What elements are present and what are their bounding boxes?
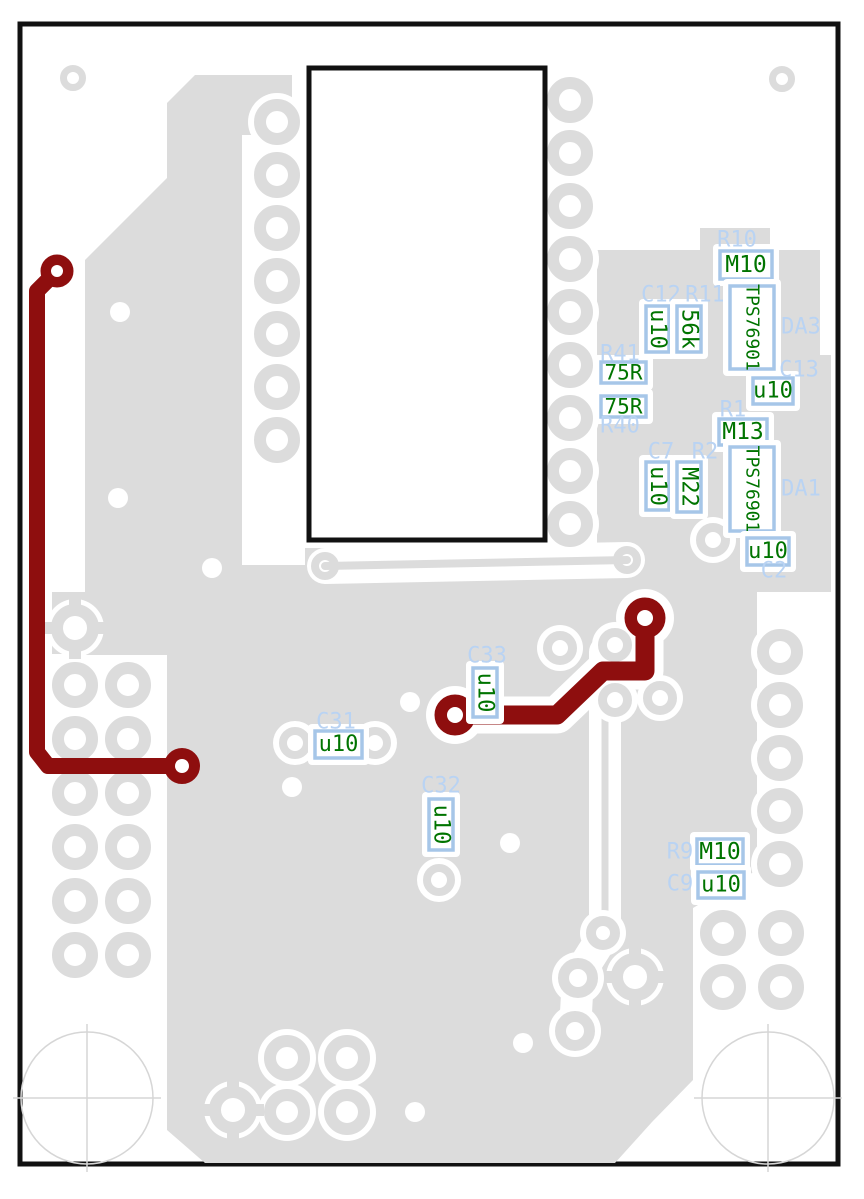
red-pad-hole: [447, 707, 463, 723]
reference-label: C32: [421, 774, 461, 799]
reference-label: R10: [717, 228, 757, 253]
red-pad-hole: [51, 265, 63, 277]
module-outline: [309, 68, 545, 540]
value-label: TPS76901: [742, 446, 763, 533]
pad-clearance: [54, 59, 92, 97]
reference-label: R2: [692, 440, 719, 465]
reference-label: C31: [316, 710, 356, 735]
value-label: 56k: [677, 309, 702, 349]
value-label: u10: [319, 732, 359, 757]
reference-label: C9: [667, 872, 694, 897]
unplated-hole: [110, 302, 130, 322]
value-label: M10: [699, 839, 741, 865]
value-label: u10: [645, 309, 670, 349]
reference-label: C33: [467, 644, 507, 669]
value-label: M10: [725, 252, 767, 278]
value-label: u10: [645, 466, 670, 506]
value-label: TPS76901: [742, 284, 763, 371]
reference-label: DA3: [781, 315, 821, 340]
unplated-hole: [108, 488, 128, 508]
reference-label: R40: [600, 414, 640, 439]
reference-label: C13: [779, 358, 819, 383]
value-label: u10: [701, 873, 741, 898]
value-label: M22: [677, 467, 702, 507]
red-pad-hole: [637, 610, 653, 626]
reference-label: R11: [685, 283, 725, 308]
unplated-hole: [202, 558, 222, 578]
reference-label: R1: [720, 398, 747, 423]
red-pad-hole: [175, 759, 189, 773]
unplated-hole: [400, 692, 420, 712]
reference-label: DA1: [781, 477, 821, 502]
unplated-hole: [513, 1033, 533, 1053]
unplated-hole: [405, 1102, 425, 1122]
pour-left-arm: [85, 178, 242, 655]
unplated-hole: [282, 777, 302, 797]
pcb-canvas: M10R10u10C1256kR11TPS76901DA3u10C1375RR4…: [0, 0, 864, 1199]
component-C33[interactable]: u10C33: [466, 644, 507, 725]
unplated-hole: [500, 833, 520, 853]
reference-label: R41: [600, 342, 640, 367]
value-label: u10: [473, 673, 498, 713]
reference-label: R9: [667, 840, 694, 865]
reference-label: C2: [761, 559, 788, 584]
component-C32[interactable]: u10C32: [421, 774, 461, 858]
value-label: u10: [429, 805, 454, 845]
pcb-layout-view: M10R10u10C1256kR11TPS76901DA3u10C1375RR4…: [0, 0, 864, 1199]
pad-clearance: [763, 60, 801, 98]
